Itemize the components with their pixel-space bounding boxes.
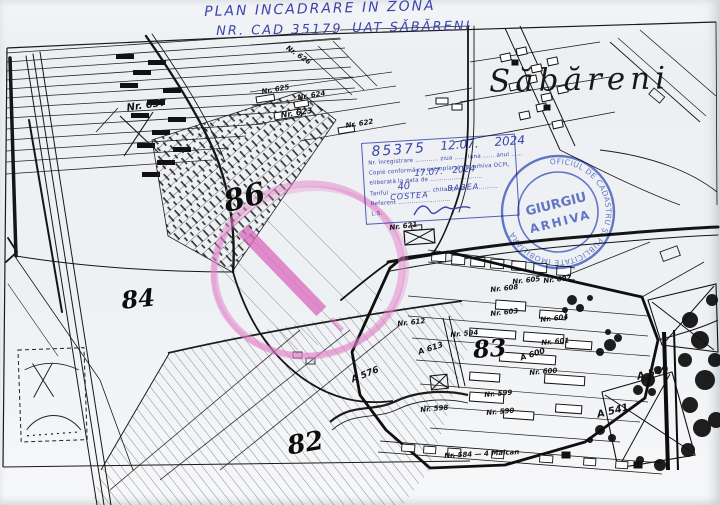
place-name-label: Săbăreni	[489, 60, 671, 99]
vegetation-blobs	[562, 294, 720, 471]
stamp-rim-text: OFICIUL DE CADASTRU ȘI PUBLICITATE IMOBI…	[492, 145, 625, 278]
svg-text:OFICIUL DE CADASTRU ȘI PUBLICI: OFICIUL DE CADASTRU ȘI PUBLICITATE IMOBI…	[492, 145, 625, 278]
scanned-cadastral-map: 86848382Nr. 637Nr. 626Nr. 625Nr. 624Nr. …	[0, 0, 720, 505]
